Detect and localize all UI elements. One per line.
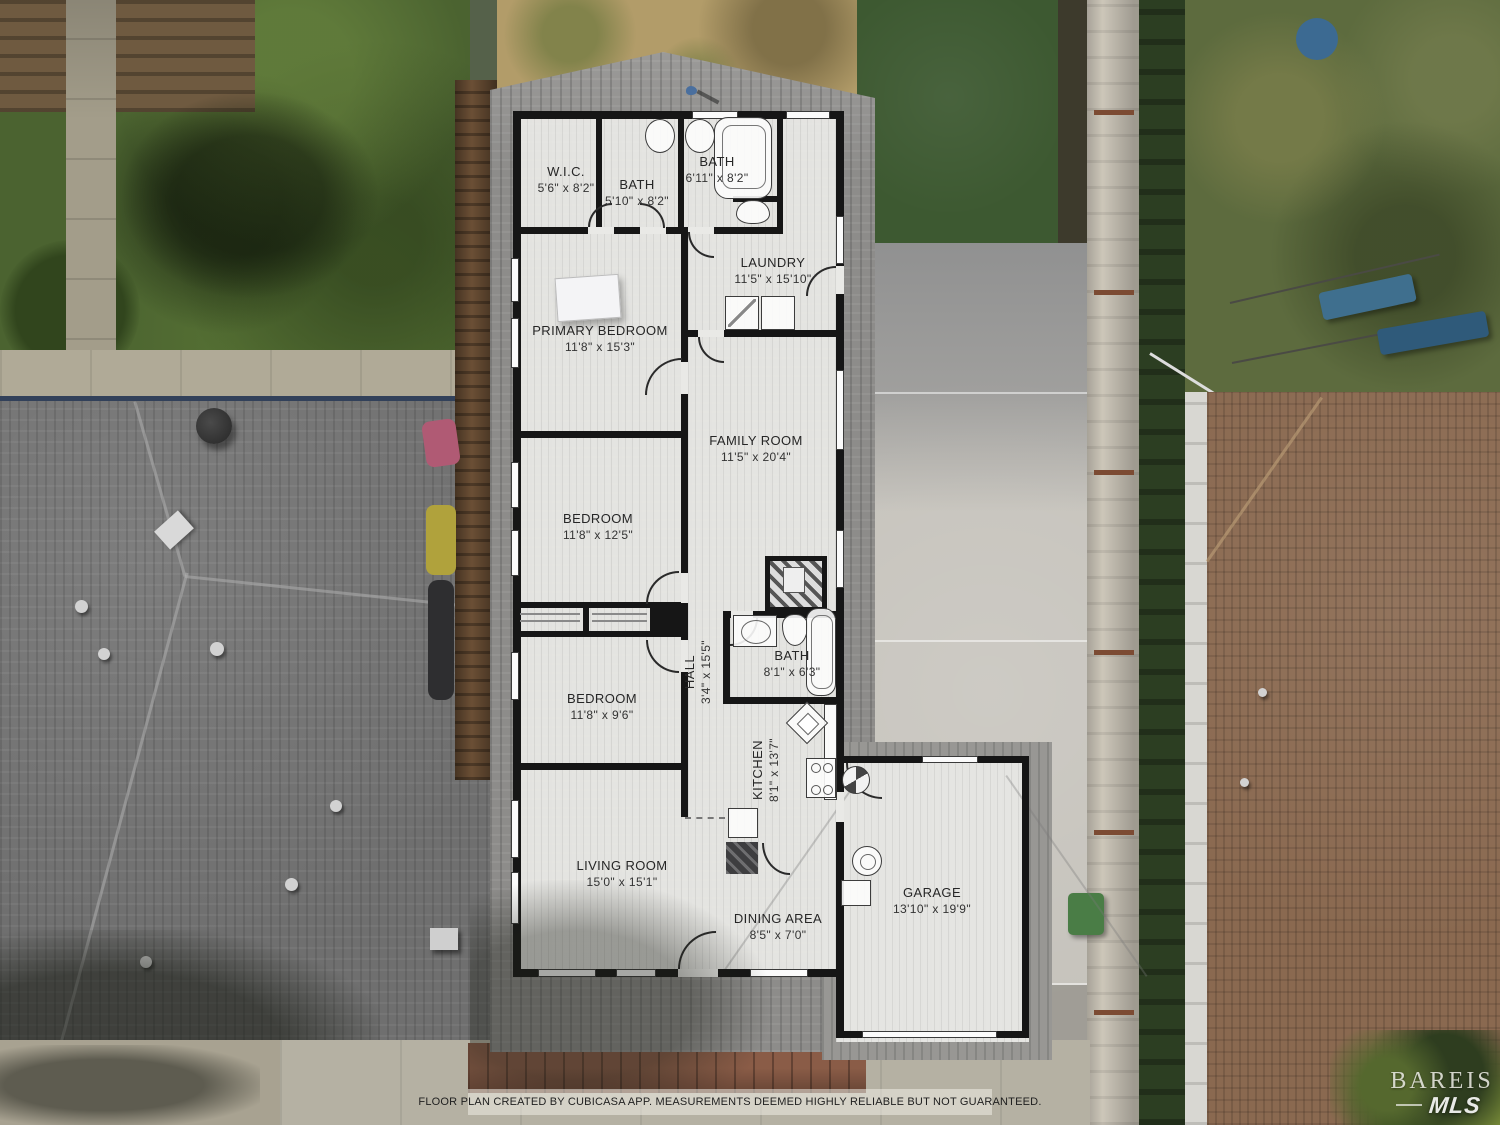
floor-plan-main [513, 111, 844, 977]
room-name: BATH [622, 153, 812, 170]
fence-rail [1094, 830, 1134, 835]
wall-bath-hall-bottom [727, 697, 844, 704]
room-label-primary: PRIMARY BEDROOM 11'8" x 15'3" [505, 322, 695, 356]
green-bin [1068, 893, 1104, 935]
grass-strip [1139, 0, 1185, 1125]
room-dims: 13'10" x 19'9" [837, 901, 1027, 918]
room-label-bedroom-lower: BEDROOM 11'8" x 9'6" [507, 690, 697, 724]
door-opening-garage [836, 792, 844, 822]
wall-closet-divider [583, 602, 589, 637]
window [836, 530, 844, 588]
fence-rail [1094, 110, 1134, 115]
room-name: LIVING ROOM [527, 857, 717, 874]
window [511, 462, 519, 508]
yard-item-dark [428, 580, 454, 700]
skylight-icon [555, 274, 622, 322]
hall-opening-dashed [685, 817, 725, 819]
door-opening [588, 227, 614, 234]
roof-vent [285, 878, 298, 891]
vanity-sink [741, 620, 771, 644]
walkway [0, 350, 470, 402]
roof-vent [210, 642, 224, 656]
gutter [0, 396, 478, 401]
disclaimer-text: FLOOR PLAN CREATED BY CUBICASA APP. MEAS… [418, 1096, 1041, 1108]
washer-mark [728, 299, 756, 327]
room-dims: 8'1" x 13'7" [766, 675, 783, 865]
closet-slider [592, 613, 647, 615]
closet-slider [520, 613, 580, 615]
neighbor-roof-right [1207, 392, 1500, 1125]
room-dims: 11'5" x 15'10" [678, 271, 868, 288]
turf-lawn [857, 0, 1087, 243]
room-name: FAMILY ROOM [661, 432, 851, 449]
gutter-right [1185, 392, 1207, 1125]
watermark-bareis: BAREIS [1382, 1068, 1500, 1095]
roof-vent [1258, 688, 1267, 697]
blue-pot [1296, 18, 1338, 60]
room-label-kitchen: KITCHEN 8'1" x 13'7" [749, 675, 783, 865]
room-name: BEDROOM [507, 690, 697, 707]
roof-vent [1240, 778, 1249, 787]
room-name: BEDROOM [503, 510, 693, 527]
room-name: GARAGE [837, 884, 1027, 901]
wall-bedroom-living [513, 763, 688, 770]
window-garage [922, 756, 978, 763]
fan-icon [842, 766, 870, 794]
roof-vent [330, 800, 342, 812]
closet-slider [592, 620, 647, 622]
room-dims: 5'10" x 8'2" [542, 193, 732, 210]
garage-door [862, 1031, 997, 1038]
room-dims: 11'5" x 20'4" [661, 449, 851, 466]
fence-rail [1094, 470, 1134, 475]
room-dims: 8'5" x 7'0" [683, 927, 873, 944]
room-name: HALL [681, 577, 698, 767]
wall-garage-left [836, 969, 844, 1038]
room-label-bath-hall: BATH 8'1" x 6'3" [697, 647, 887, 681]
fireplace-box [783, 567, 805, 593]
room-name: KITCHEN [749, 675, 766, 865]
water-heater-inner [860, 854, 876, 870]
burner [823, 763, 833, 773]
fence-rail [1094, 290, 1134, 295]
room-name: LAUNDRY [678, 254, 868, 271]
tree-shadow [120, 90, 380, 300]
driveway-joint [842, 392, 1087, 394]
roof-vent-box [430, 928, 458, 950]
toilet-icon [736, 200, 770, 224]
closet-slider [520, 620, 580, 622]
roof-vent [75, 600, 88, 613]
fence-rail [1094, 650, 1134, 655]
window [786, 111, 830, 119]
room-dims: 11'8" x 12'5" [503, 527, 693, 544]
roof-vent [98, 648, 110, 660]
door-opening [698, 330, 724, 337]
wall-closet-block [650, 602, 684, 637]
room-label-bedroom-mid: BEDROOM 11'8" x 12'5" [503, 510, 693, 544]
sidewalk-shadow [0, 1045, 260, 1125]
yard-item-yellow [426, 505, 456, 575]
room-dims: 15'0" x 15'1" [527, 874, 717, 891]
disclaimer-banner: FLOOR PLAN CREATED BY CUBICASA APP. MEAS… [468, 1089, 992, 1115]
room-dims: 11'8" x 15'3" [505, 339, 695, 356]
room-dims: 6'11" x 8'2" [622, 170, 812, 187]
room-label-garage: GARAGE 13'10" x 19'9" [837, 884, 1027, 918]
window [511, 800, 519, 858]
room-dims: 8'1" x 6'3" [697, 664, 887, 681]
yard-item-pink [421, 418, 461, 468]
room-label-family: FAMILY ROOM 11'5" x 20'4" [661, 432, 851, 466]
burner [811, 763, 821, 773]
room-dims: 11'8" x 9'6" [507, 707, 697, 724]
fence-rail [1094, 1010, 1134, 1015]
watermark-line [1396, 1104, 1422, 1106]
burner [811, 785, 821, 795]
room-label-bath-upper: BATH 6'11" x 8'2" [622, 153, 812, 187]
bird [686, 86, 697, 95]
aerial-floor-plan-image: W.I.C. 5'6" x 8'2" BATH 5'10" x 8'2" BAT… [0, 0, 1500, 1125]
dryer-icon [761, 296, 795, 330]
window [511, 258, 519, 302]
driveway-joint [842, 640, 1087, 642]
burner [823, 785, 833, 795]
soil-strip [1058, 0, 1088, 245]
room-name: BATH [697, 647, 887, 664]
room-label-laundry: LAUNDRY 11'5" x 15'10" [678, 254, 868, 288]
room-name: PRIMARY BEDROOM [505, 322, 695, 339]
room-label-living: LIVING ROOM 15'0" x 15'1" [527, 857, 717, 891]
sink-icon [645, 119, 675, 153]
concrete-path [66, 0, 116, 400]
satellite-dish [196, 408, 232, 444]
door-opening [640, 227, 666, 234]
sink-icon [685, 119, 715, 153]
door-opening [681, 362, 688, 394]
